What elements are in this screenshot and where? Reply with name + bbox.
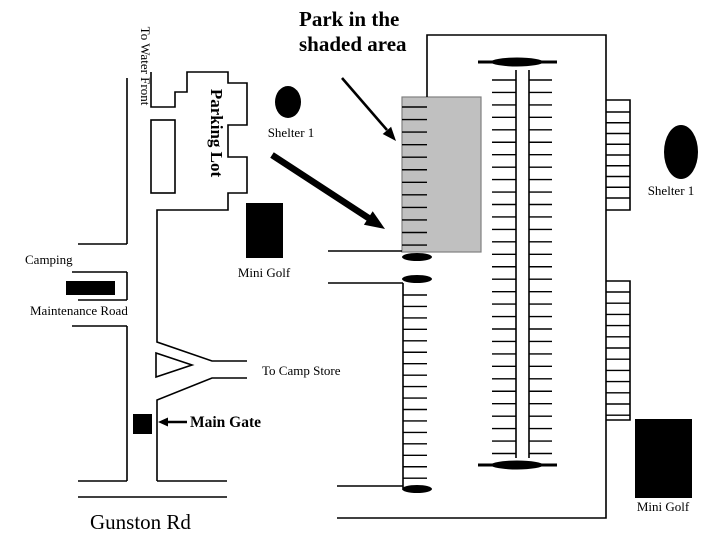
road-end-oval-shaded xyxy=(402,253,432,261)
ticks-east-lower xyxy=(606,292,630,415)
park-map-canvas: Park in the shaded area To Water Front P… xyxy=(0,0,720,540)
main-gate-label: Main Gate xyxy=(190,414,261,431)
maintenance-building-rect xyxy=(66,281,115,295)
shelter1-left-oval xyxy=(275,86,301,118)
west-access-roads xyxy=(72,78,127,481)
park-map: Park in the shaded area To Water Front P… xyxy=(0,0,720,540)
fork-traffic-island xyxy=(156,353,192,377)
camping-label: Camping xyxy=(25,252,73,267)
east-lower-bay-outline xyxy=(606,281,630,420)
shelter1-right-oval xyxy=(664,125,698,179)
mini-golf-left-rect xyxy=(246,203,283,258)
mini-golf-right-rect xyxy=(635,419,692,498)
main-gate-square xyxy=(133,414,152,434)
ticks-loop-left xyxy=(492,80,516,454)
park-here-arrow xyxy=(272,155,385,229)
shelter1-left-label: Shelter 1 xyxy=(268,125,315,140)
ticks-loop-right xyxy=(529,80,552,454)
ticks-west-ladder xyxy=(403,295,427,478)
ticks-east-upper xyxy=(606,112,630,198)
maintenance-road-label: Maintenance Road xyxy=(30,303,128,318)
loop-bottom-spindle xyxy=(478,461,557,470)
shelter1-right-label: Shelter 1 xyxy=(648,183,695,198)
parking-lot-label: Parking Lot xyxy=(207,89,226,178)
loop-top-spindle xyxy=(478,58,557,67)
main-gate-arrow xyxy=(158,418,187,427)
road-end-oval-ladder-top xyxy=(402,275,432,283)
gunston-road-lines xyxy=(78,481,227,497)
to-water-front-label: To Water Front xyxy=(138,27,153,106)
central-loop-road xyxy=(516,70,529,458)
mini-golf-right-label: Mini Golf xyxy=(637,499,690,514)
map-title-line1: Park in the xyxy=(299,7,399,31)
to-camp-store-label: To Camp Store xyxy=(262,363,341,378)
mini-golf-left-label: Mini Golf xyxy=(238,265,291,280)
parking-lot-island xyxy=(151,120,175,193)
title-arrow xyxy=(342,78,396,141)
gunston-rd-label: Gunston Rd xyxy=(90,510,191,534)
map-title-line2: shaded area xyxy=(299,32,407,56)
road-end-oval-ladder-bottom xyxy=(402,485,432,493)
